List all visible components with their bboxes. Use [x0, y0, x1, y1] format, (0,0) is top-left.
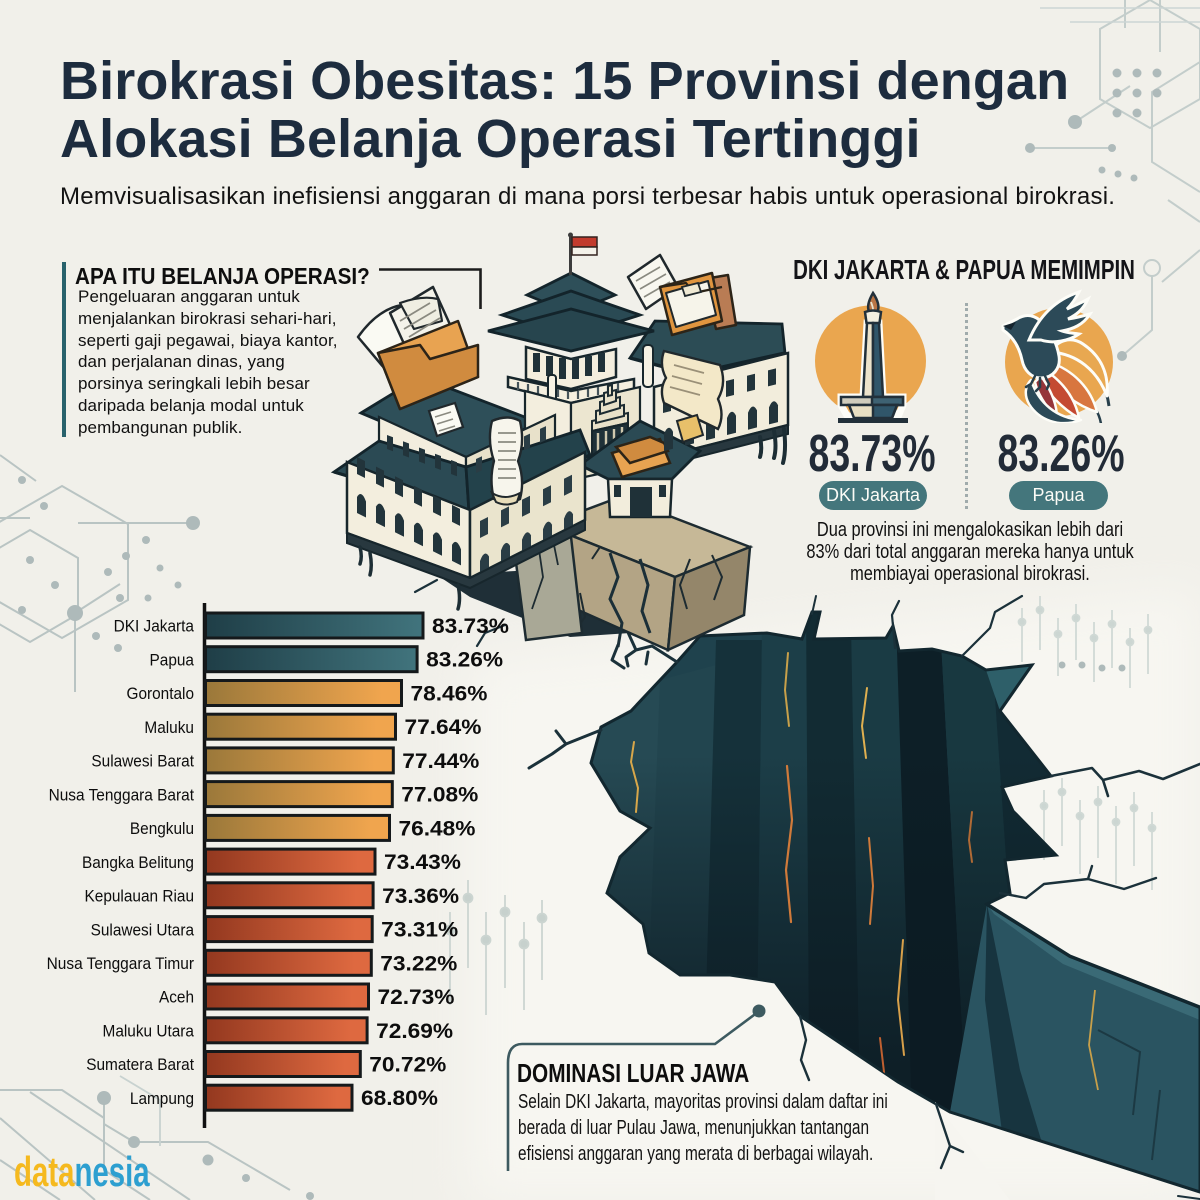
svg-text:Bangka Belitung: Bangka Belitung	[82, 853, 194, 872]
svg-text:Aceh: Aceh	[159, 988, 194, 1007]
svg-text:77.64%: 77.64%	[405, 715, 482, 739]
svg-text:Nusa Tenggara Barat: Nusa Tenggara Barat	[49, 785, 195, 804]
svg-text:Nusa Tenggara Timur: Nusa Tenggara Timur	[47, 954, 195, 973]
svg-text:78.46%: 78.46%	[411, 682, 488, 706]
svg-text:73.31%: 73.31%	[381, 918, 458, 942]
svg-text:Sulawesi Utara: Sulawesi Utara	[91, 920, 195, 939]
svg-text:Maluku Utara: Maluku Utara	[103, 1022, 195, 1041]
svg-text:83.73%: 83.73%	[432, 614, 509, 638]
svg-text:Sulawesi Barat: Sulawesi Barat	[91, 752, 194, 771]
svg-text:Lampung: Lampung	[130, 1089, 194, 1108]
svg-text:70.72%: 70.72%	[369, 1053, 446, 1077]
svg-text:73.36%: 73.36%	[382, 884, 459, 908]
svg-text:68.80%: 68.80%	[361, 1086, 438, 1110]
svg-text:Papua: Papua	[150, 650, 195, 669]
svg-text:72.69%: 72.69%	[376, 1019, 453, 1043]
svg-text:Bengkulu: Bengkulu	[130, 819, 194, 838]
svg-text:77.44%: 77.44%	[402, 749, 479, 773]
svg-text:83.26%: 83.26%	[426, 648, 503, 672]
svg-text:Maluku: Maluku	[144, 718, 194, 737]
svg-text:76.48%: 76.48%	[399, 816, 476, 840]
svg-text:DKI Jakarta: DKI Jakarta	[114, 617, 195, 636]
svg-text:73.43%: 73.43%	[384, 850, 461, 874]
svg-text:73.22%: 73.22%	[380, 951, 457, 975]
svg-text:Gorontalo: Gorontalo	[127, 684, 195, 703]
svg-text:72.73%: 72.73%	[378, 985, 455, 1009]
svg-text:Sumatera Barat: Sumatera Barat	[86, 1055, 194, 1074]
svg-text:77.08%: 77.08%	[401, 783, 478, 807]
svg-text:Kepulauan Riau: Kepulauan Riau	[85, 887, 195, 906]
